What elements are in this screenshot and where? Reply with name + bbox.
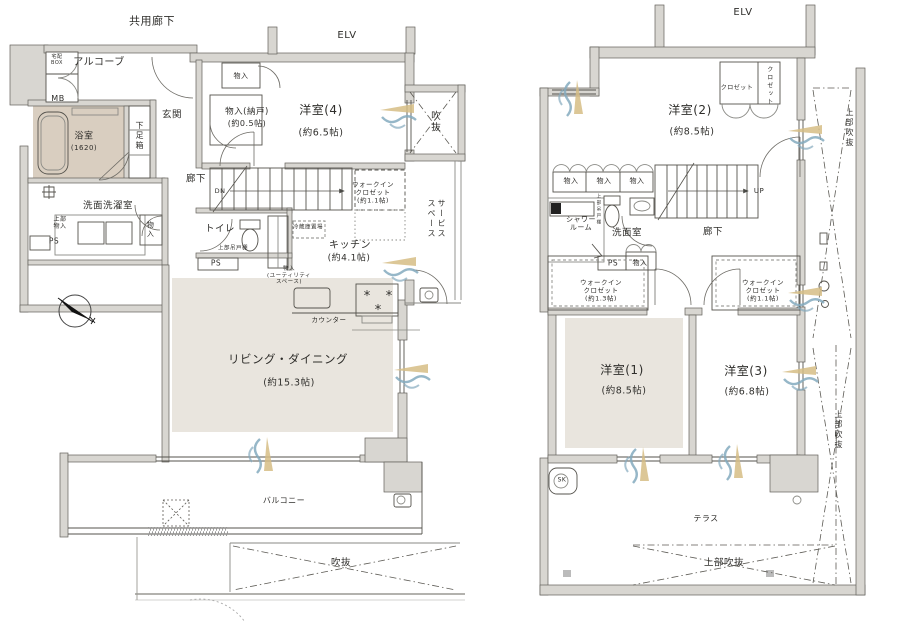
- svg-text:*: *: [375, 303, 382, 318]
- walls-layer: [10, 5, 865, 595]
- door-arcs-layer: [99, 57, 800, 305]
- floorplan-page: *** 共用廊下ELVアルコーブ宅配 BOXMB浴室(1620)下足箱玄関物入物…: [0, 0, 900, 623]
- fixtures-layer: [30, 52, 829, 622]
- svg-text:*: *: [386, 289, 393, 304]
- floorplan-drawing: ***: [0, 0, 900, 623]
- svg-text:*: *: [364, 289, 371, 304]
